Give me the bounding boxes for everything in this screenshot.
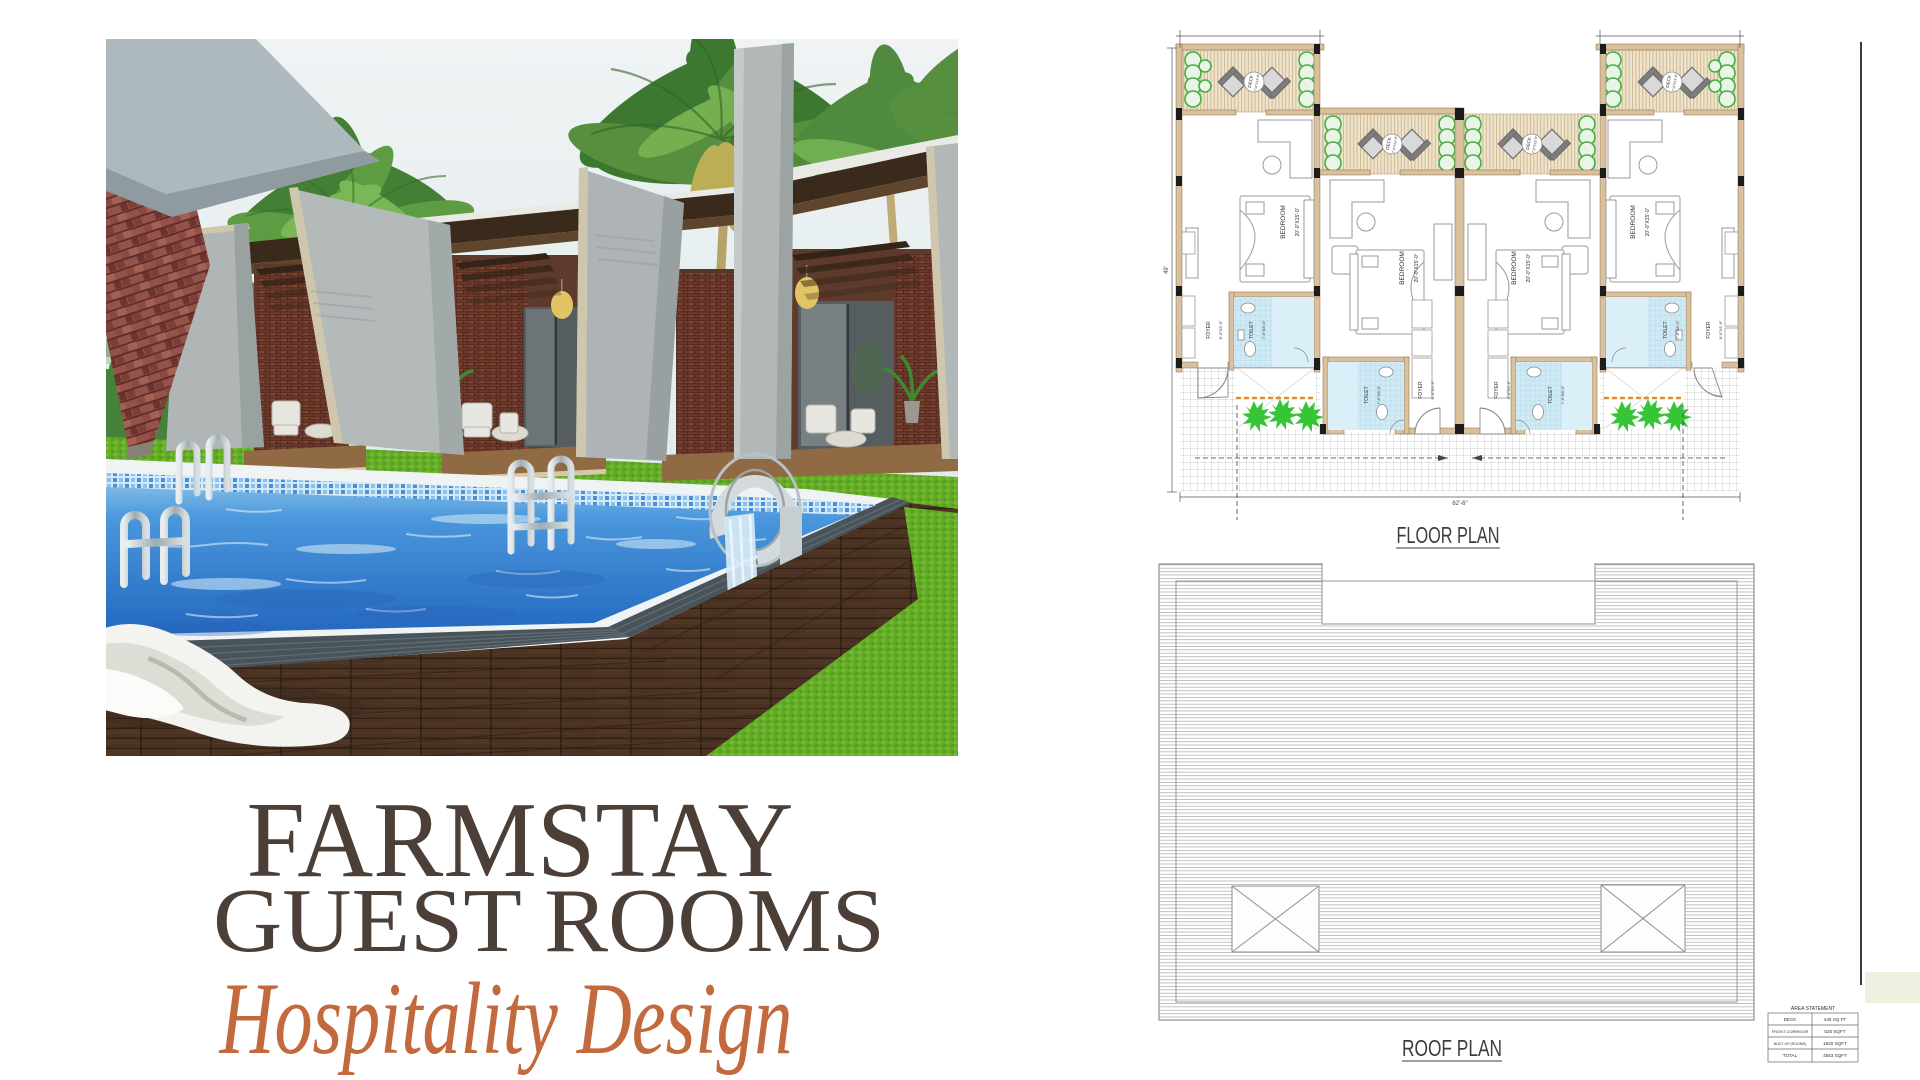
svg-text:FOYER: FOYER [1494, 381, 1500, 399]
svg-text:8'-0"X5'-6": 8'-0"X5'-6" [1506, 380, 1511, 399]
svg-text:20'-0"X15'-0": 20'-0"X15'-0" [1414, 253, 1420, 282]
svg-text:TOTAL: TOTAL [1783, 1053, 1798, 1058]
svg-text:FLOOR PLAN: FLOOR PLAN [1397, 522, 1500, 548]
svg-text:4563 SQFT: 4563 SQFT [1823, 1053, 1847, 1058]
svg-text:FRONT CORRIDOR: FRONT CORRIDOR [1772, 1029, 1809, 1034]
svg-text:AREA STATEMENT: AREA STATEMENT [1791, 1006, 1835, 1012]
svg-text:FOYER: FOYER [1418, 381, 1424, 399]
svg-text:TOILET: TOILET [1249, 321, 1255, 338]
svg-text:TOILET: TOILET [1548, 386, 1554, 403]
svg-text:440 SQ FT: 440 SQ FT [1824, 1017, 1847, 1022]
svg-text:7'-6"X8'-0": 7'-6"X8'-0" [1675, 320, 1680, 339]
svg-text:DECK: DECK [1784, 1017, 1798, 1022]
svg-text:49': 49' [1164, 266, 1170, 274]
svg-text:7'-6"X8'-0": 7'-6"X8'-0" [1376, 385, 1381, 404]
svg-text:20'-0"X15'-0": 20'-0"X15'-0" [1526, 253, 1532, 282]
svg-text:8'-0"X5'-6": 8'-0"X5'-6" [1218, 320, 1223, 339]
svg-text:1820 SQFT: 1820 SQFT [1823, 1041, 1847, 1046]
svg-text:BUILT UP (ROOMS): BUILT UP (ROOMS) [1774, 1042, 1807, 1046]
svg-text:8'-0"X5'-6": 8'-0"X5'-6" [1718, 320, 1723, 339]
svg-text:525 SQFT: 525 SQFT [1824, 1029, 1845, 1034]
svg-text:ROOF PLAN: ROOF PLAN [1402, 1035, 1502, 1061]
svg-text:GUEST ROOMS: GUEST ROOMS [213, 870, 885, 971]
svg-text:20'-0"X15'-0": 20'-0"X15'-0" [1645, 207, 1651, 236]
svg-text:7'-6"X8'-0": 7'-6"X8'-0" [1560, 385, 1565, 404]
svg-text:TOILET: TOILET [1364, 386, 1370, 403]
svg-text:BEDROOM: BEDROOM [1399, 251, 1406, 285]
svg-text:FOYER: FOYER [1206, 321, 1212, 339]
svg-text:BEDROOM: BEDROOM [1630, 205, 1637, 239]
svg-text:BEDROOM: BEDROOM [1511, 251, 1518, 285]
svg-text:Hospitality Design: Hospitality Design [218, 962, 792, 1076]
svg-text:TOILET: TOILET [1663, 321, 1669, 338]
svg-text:7'-6"X8'-0": 7'-6"X8'-0" [1261, 320, 1266, 339]
svg-text:62'-6": 62'-6" [1452, 501, 1467, 507]
svg-text:BEDROOM: BEDROOM [1280, 205, 1287, 239]
svg-text:8'-0"X5'-6": 8'-0"X5'-6" [1430, 380, 1435, 399]
svg-text:FOYER: FOYER [1706, 321, 1712, 339]
svg-text:20'-0"X15'-0": 20'-0"X15'-0" [1295, 207, 1301, 236]
